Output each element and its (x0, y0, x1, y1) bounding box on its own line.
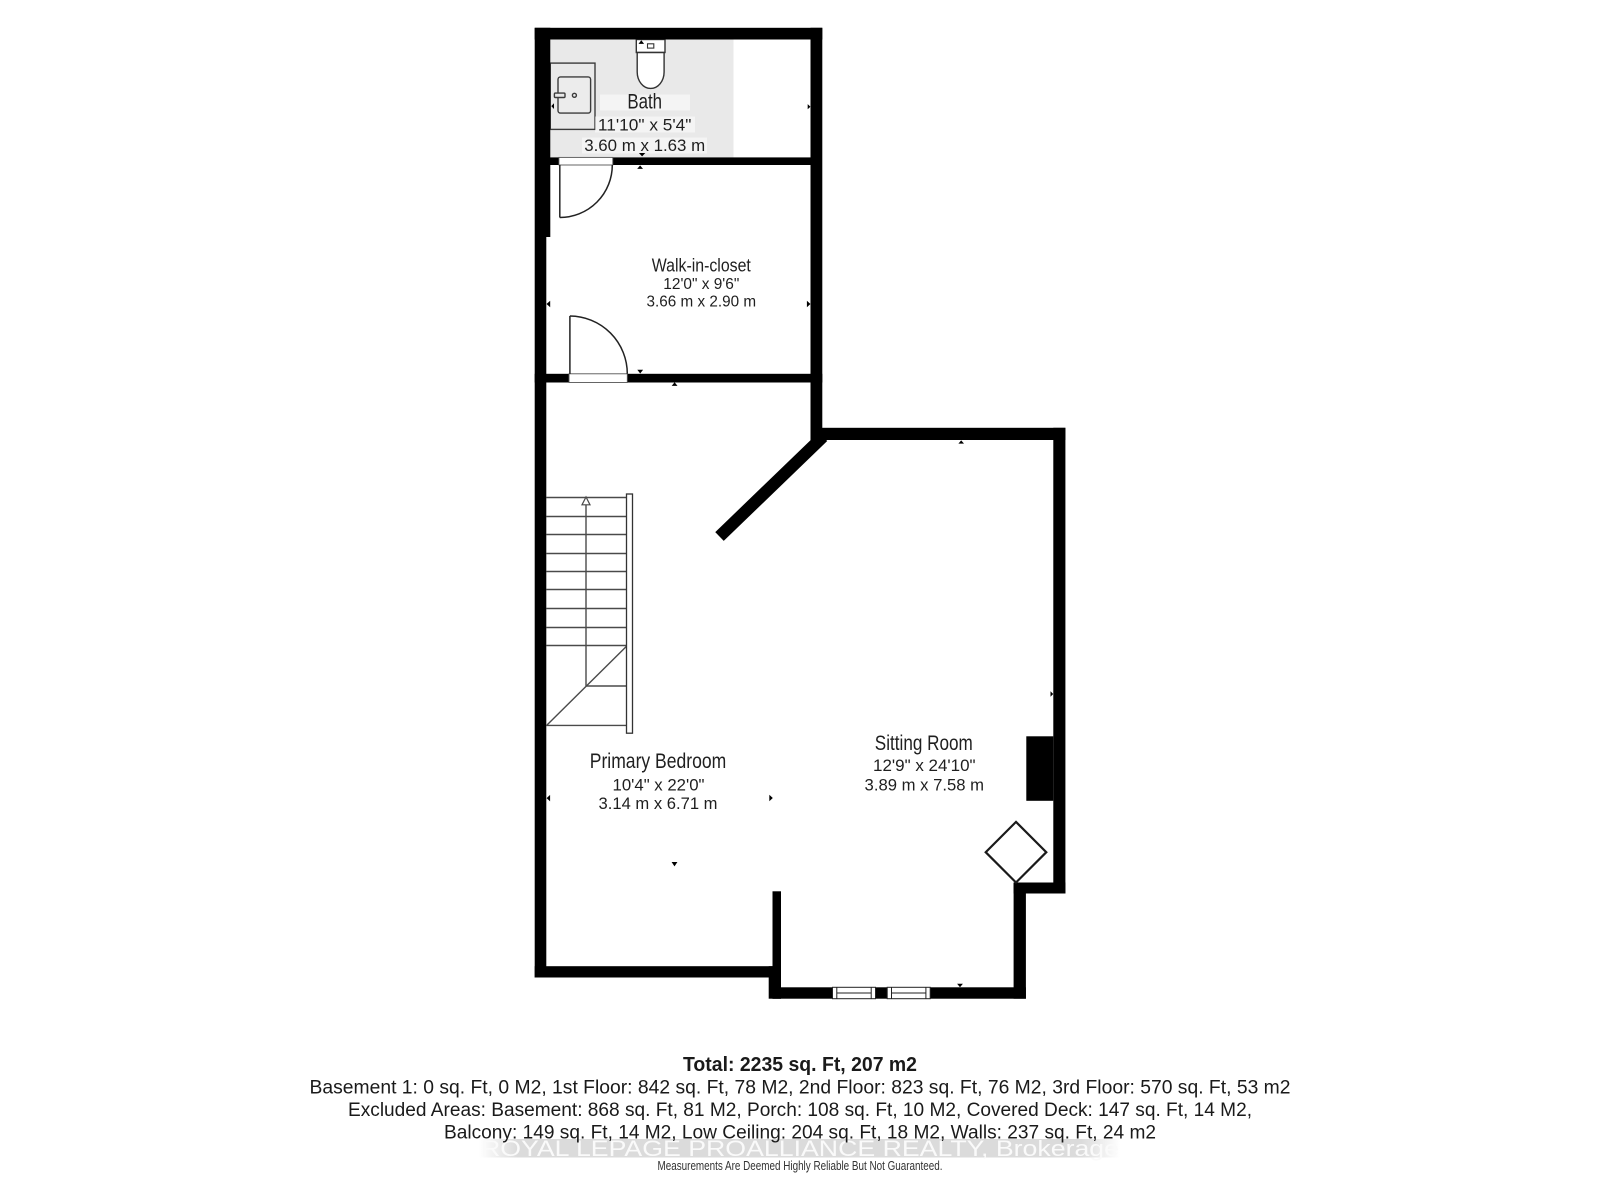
svg-text:12'9" x 24'10": 12'9" x 24'10" (873, 756, 976, 775)
svg-text:12'0" x 9'6": 12'0" x 9'6" (663, 276, 739, 293)
svg-text:Measurements Are Deemed Highly: Measurements Are Deemed Highly Reliable … (658, 1159, 943, 1173)
svg-text:Basement 1: 0 sq. Ft, 0 M2, 1s: Basement 1: 0 sq. Ft, 0 M2, 1st Floor: 8… (310, 1078, 1291, 1099)
svg-text:3.66 m x 2.90 m: 3.66 m x 2.90 m (647, 293, 757, 310)
svg-text:10'4" x 22'0": 10'4" x 22'0" (613, 776, 705, 795)
svg-text:Bath: Bath (627, 91, 662, 114)
svg-text:3.60 m x 1.63 m: 3.60 m x 1.63 m (584, 136, 705, 155)
svg-text:Sitting Room: Sitting Room (875, 732, 973, 755)
svg-text:Walk-in-closet: Walk-in-closet (652, 255, 751, 276)
svg-text:Total: 2235 sq. Ft, 207 m2: Total: 2235 sq. Ft, 207 m2 (683, 1053, 917, 1076)
svg-text:Balcony: 149 sq. Ft, 14 M2, Lo: Balcony: 149 sq. Ft, 14 M2, Low Ceiling:… (444, 1123, 1156, 1144)
svg-text:3.14 m x 6.71 m: 3.14 m x 6.71 m (599, 794, 718, 813)
svg-text:11'10" x 5'4": 11'10" x 5'4" (598, 116, 692, 135)
svg-text:3.89 m x 7.58 m: 3.89 m x 7.58 m (865, 776, 985, 795)
svg-text:Excluded Areas: Basement: 868: Excluded Areas: Basement: 868 sq. Ft, 81… (348, 1100, 1252, 1121)
svg-text:Primary Bedroom: Primary Bedroom (590, 750, 727, 773)
